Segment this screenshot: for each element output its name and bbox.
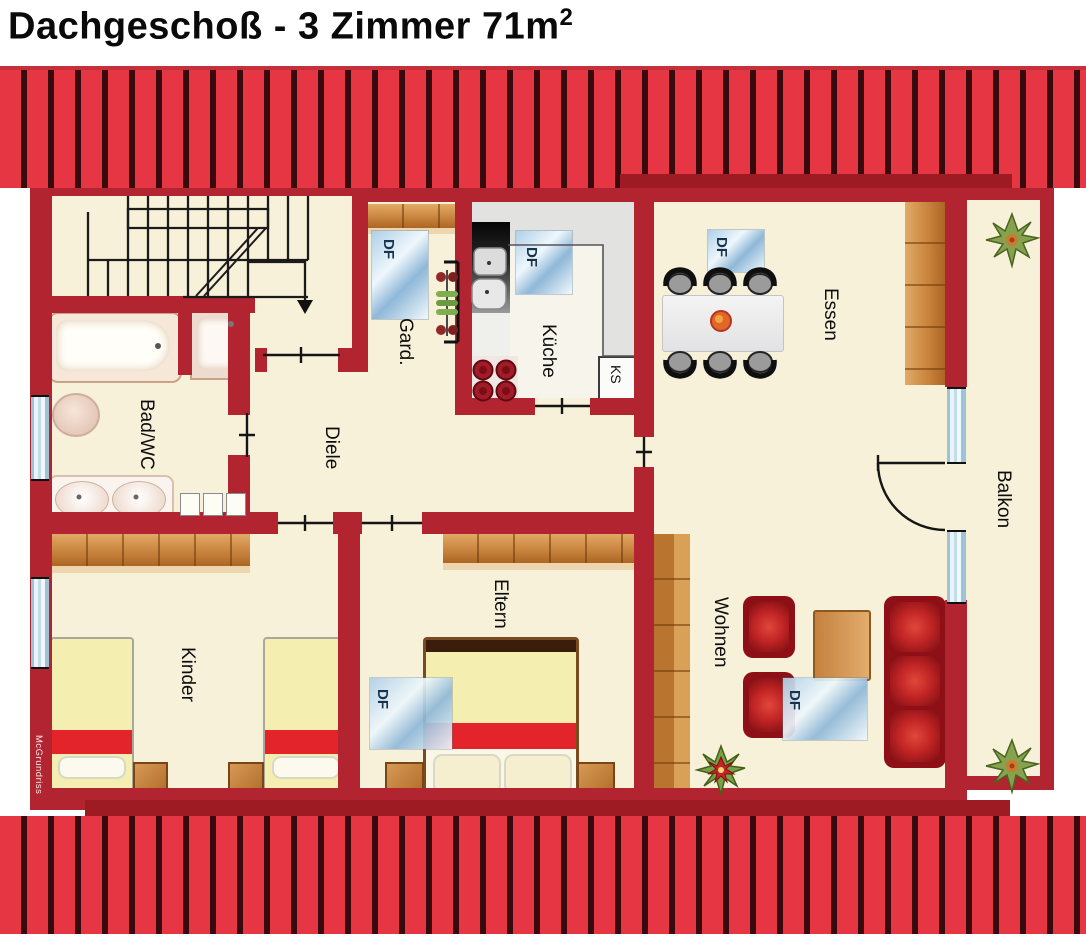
roof-window-label: DF	[786, 690, 803, 710]
roof-hatching-top	[0, 68, 1086, 188]
wall-outer-right-lower	[945, 600, 967, 790]
armchair-cushion	[749, 602, 789, 652]
wall-gard-kitchen	[455, 188, 472, 415]
wall-outer-top-thin	[30, 188, 368, 196]
bath-shelf-box	[226, 493, 246, 516]
wall-stair-bath	[30, 296, 255, 313]
window-kids	[31, 577, 49, 669]
dining-sideboard	[905, 202, 945, 385]
window-bath	[31, 395, 49, 481]
sofa-cushion	[890, 602, 940, 652]
wall-balcony-right	[1040, 188, 1054, 790]
roof-window-label: DF	[523, 247, 540, 267]
kids-shelf	[52, 533, 250, 566]
page-title: Dachgeschoß - 3 Zimmer 71m2	[8, 4, 573, 49]
window-balcony-upper	[947, 387, 966, 464]
roof-window-label: DF	[374, 689, 391, 709]
parents-bed-footboard	[426, 640, 576, 652]
kids-bed-right-pillow	[272, 756, 340, 779]
kids-shelf-edge	[52, 566, 250, 573]
room-label-ks: KS	[608, 365, 624, 384]
wall-door-jamb	[338, 348, 352, 372]
wall-kinder-eltern	[338, 534, 360, 788]
roof-window-label: DF	[380, 239, 397, 259]
parents-wardrobe-edge	[443, 563, 634, 570]
kids-bed-right	[263, 637, 349, 801]
stove	[472, 356, 518, 398]
wall-bath-right-upper	[228, 296, 250, 415]
room-label-kueche: Küche	[537, 324, 559, 378]
wall-south-hall-c	[422, 512, 640, 534]
page-title-superscript: 2	[560, 4, 574, 31]
page-title-text: Dachgeschoß - 3 Zimmer 71m	[8, 6, 560, 48]
wardrobe-shelf	[368, 204, 460, 228]
room-label-gard: Gard.	[394, 318, 416, 366]
dining-table	[662, 295, 784, 352]
roof-trim-top	[0, 66, 1086, 70]
wall-eltern-living	[634, 467, 654, 788]
kids-bed-left-blanket-stripe	[52, 730, 132, 754]
sofa-cushion	[890, 710, 940, 762]
bathtub-basin	[56, 320, 170, 371]
room-label-wohnen: Wohnen	[709, 597, 731, 667]
room-label-essen: Essen	[819, 288, 841, 341]
sofa-cushion	[890, 656, 940, 706]
living-bookshelf	[654, 534, 690, 788]
parents-wardrobe	[443, 533, 634, 563]
roof-dark-bar-bottom	[85, 800, 1010, 816]
floorplan-page: Dachgeschoß - 3 Zimmer 71m2	[0, 0, 1086, 945]
armchair	[743, 596, 795, 658]
room-label-diele: Diele	[320, 426, 342, 469]
kids-bed-right-blanket-stripe	[265, 730, 347, 754]
window-balcony-lower	[947, 530, 966, 604]
coffee-table	[813, 610, 871, 681]
watermark: McGrundriss	[33, 735, 44, 794]
room-label-bad: Bad/WC	[135, 399, 157, 470]
wall-outer-right-upper	[945, 188, 967, 387]
kids-bed-left	[50, 637, 134, 801]
kitchen-sink-counter	[472, 222, 510, 313]
room-label-balkon: Balkon	[992, 470, 1014, 528]
sofa	[884, 596, 946, 768]
toilet	[52, 393, 100, 437]
wall-outer-left	[30, 188, 52, 810]
wall-kitchen-bottom-right	[590, 398, 654, 415]
room-label-kinder: Kinder	[176, 647, 198, 702]
room-label-eltern: Eltern	[489, 579, 511, 629]
wall-south-hall-b	[333, 512, 362, 534]
wall-stair-gard	[352, 188, 368, 372]
roof-window-label: DF	[713, 237, 730, 257]
bath-shelf-box	[180, 493, 200, 516]
bathtub	[48, 312, 182, 383]
wall-kitchen-bottom-left	[455, 398, 535, 415]
wall-tub-shower	[178, 313, 192, 375]
roof-hatching-bottom	[0, 816, 1086, 934]
wall-door-jamb	[255, 348, 267, 372]
bath-shelf-box	[203, 493, 223, 516]
kids-bed-left-pillow	[58, 756, 126, 779]
wall-balcony-bottom	[967, 776, 1054, 790]
